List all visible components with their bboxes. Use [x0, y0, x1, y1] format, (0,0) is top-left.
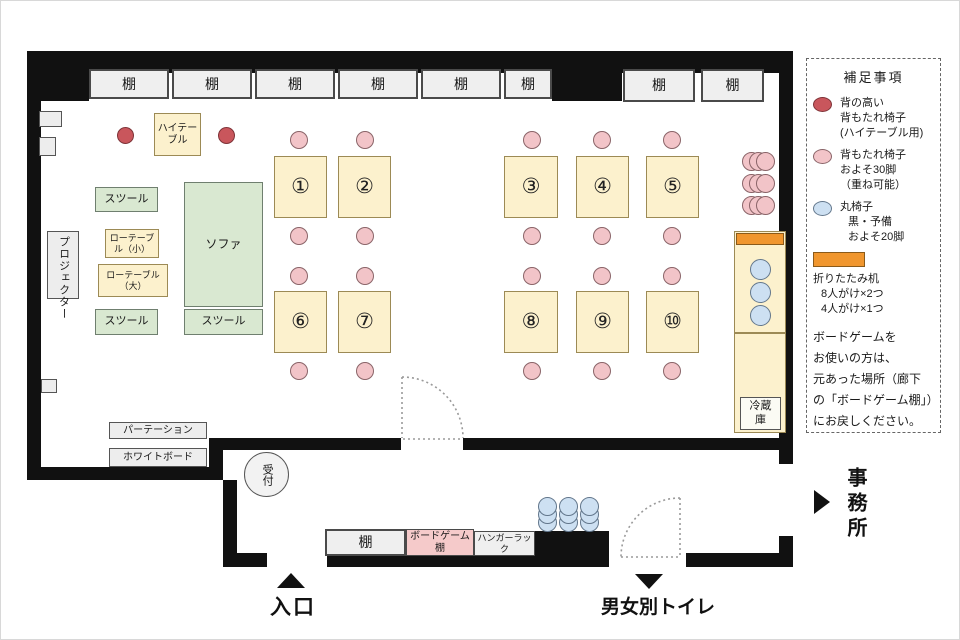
chair	[290, 131, 308, 149]
legend-note-line: お使いの方は、	[813, 348, 934, 369]
chair	[356, 267, 374, 285]
entrance-label: 入口	[263, 591, 323, 621]
whiteboard: ホワイトボード	[109, 448, 207, 467]
chair	[593, 227, 611, 245]
wall-corridor-bottom-right	[686, 553, 793, 567]
stacked-chair	[756, 152, 775, 171]
round-stool	[750, 259, 771, 280]
legend-line: (ハイテーブル用)	[840, 126, 923, 141]
table-1: ①	[274, 156, 327, 218]
shelf-top-6: 棚	[504, 69, 552, 99]
stool-top: スツール	[95, 187, 158, 212]
legend-line: 背もたれ椅子	[840, 111, 923, 126]
hanger-rack: ハンガーラック	[474, 531, 535, 556]
stacked-stool	[559, 497, 578, 516]
wall-bottom-main-right	[463, 438, 793, 450]
wall-bottom-main-left	[209, 438, 401, 450]
stacked-chair	[756, 196, 775, 215]
table-6: ⑥	[274, 291, 327, 353]
table-9: ⑨	[576, 291, 629, 353]
chair	[663, 227, 681, 245]
chair	[663, 362, 681, 380]
table-7: ⑦	[338, 291, 391, 353]
legend-line: およそ30脚	[840, 163, 906, 178]
tall-chair-1	[117, 127, 134, 144]
reception-desk: 受付	[244, 452, 289, 497]
sofa: ソファ	[184, 182, 263, 307]
legend-note-line: ボードゲームを	[813, 327, 934, 348]
legend-panel: 補足事項 背の高い 背もたれ椅子 (ハイテーブル用) 背もたれ椅子 およそ30脚…	[806, 58, 941, 433]
chair	[356, 131, 374, 149]
office-label: 事務所	[841, 467, 870, 557]
legend-title: 補足事項	[813, 67, 934, 86]
legend-line: およそ20脚	[840, 230, 904, 245]
table-2: ②	[338, 156, 391, 218]
round-stool	[750, 305, 771, 326]
legend-item-tall-back-chair: 背の高い 背もたれ椅子 (ハイテーブル用)	[813, 96, 934, 141]
stool-bottom-right: スツール	[184, 309, 263, 335]
folding-desk-icon	[813, 252, 865, 267]
legend-line: （重ね可能）	[840, 178, 906, 193]
legend-note: ボードゲームを お使いの方は、 元あった場所（廊下 の「ボードゲーム棚」） にお…	[813, 327, 934, 432]
chair	[523, 362, 541, 380]
chair	[523, 131, 541, 149]
wall-bottom-left	[27, 467, 223, 480]
table-5: ⑤	[646, 156, 699, 218]
toilet-door-arc	[621, 498, 680, 557]
entrance-arrow-icon	[277, 573, 305, 588]
legend-note-line: 元あった場所（廊下	[813, 369, 934, 390]
chair	[356, 362, 374, 380]
tall-chair-2	[218, 127, 235, 144]
fridge: 冷蔵庫	[740, 397, 781, 430]
shelf-top-4: 棚	[338, 69, 418, 99]
chair	[593, 267, 611, 285]
low-table-small: ローテーブル（小）	[105, 229, 159, 258]
table-4: ④	[576, 156, 629, 218]
legend-note-line: にお戻しください。	[813, 411, 934, 432]
partition: パーテーション	[109, 422, 207, 439]
shelf-bottom: 棚	[325, 529, 406, 556]
toilet-arrow-icon	[635, 574, 663, 589]
shelf-top-7: 棚	[623, 69, 695, 102]
round-stool	[750, 282, 771, 303]
legend-line: 丸椅子	[840, 200, 904, 215]
legend-line: 折りたたみ机	[813, 272, 934, 287]
wall-fixture-box-3	[41, 379, 57, 393]
chair	[663, 267, 681, 285]
wall-top-mid-block	[552, 51, 622, 101]
chair	[290, 267, 308, 285]
low-table-large: ローテーブル（大）	[98, 264, 168, 297]
chair	[356, 227, 374, 245]
projector-label: プロジェクター	[51, 207, 75, 349]
chair	[663, 131, 681, 149]
shelf-top-5: 棚	[421, 69, 501, 99]
table-8: ⑧	[504, 291, 558, 353]
legend-item-folding-desk: 折りたたみ机 8人がけ×2つ 4人がけ×1つ	[813, 252, 934, 317]
legend-line: 8人がけ×2つ	[813, 287, 934, 302]
table-10: ⑩	[646, 291, 699, 353]
office-arrow-icon	[814, 490, 830, 514]
wall-corridor-block	[534, 531, 609, 567]
stacked-stool	[580, 497, 599, 516]
high-table: ハイテーブル	[154, 113, 201, 156]
legend-item-round-stool: 丸椅子 黒・予備 およそ20脚	[813, 200, 934, 245]
chair	[593, 362, 611, 380]
legend-line: 4人がけ×1つ	[813, 302, 934, 317]
legend-line: 背もたれ椅子	[840, 148, 906, 163]
chair	[523, 267, 541, 285]
toilet-label: 男女別トイレ	[593, 592, 723, 619]
legend-line: 背の高い	[840, 96, 923, 111]
table-3: ③	[504, 156, 558, 218]
shelf-top-8: 棚	[701, 69, 764, 102]
legend-line: 黒・予備	[840, 215, 904, 230]
main-room-door-arc	[402, 377, 463, 438]
shelf-top-1: 棚	[89, 69, 169, 99]
shelf-top-3: 棚	[255, 69, 335, 99]
stacked-chair	[756, 174, 775, 193]
back-chair-icon	[813, 149, 832, 164]
folding-desk	[736, 233, 784, 245]
wall-fixture-box-1	[39, 111, 62, 127]
wall-corridor-stub	[223, 553, 267, 567]
legend-note-line: の「ボードゲーム棚」）	[813, 390, 934, 411]
chair	[593, 131, 611, 149]
tall-back-chair-icon	[813, 97, 832, 112]
round-stool-icon	[813, 201, 832, 216]
board-game-shelf: ボードゲーム棚	[406, 529, 474, 556]
floor-plan: 棚 棚 棚 棚 棚 棚 棚 棚 プロジェクター ハイテーブル スツール ローテー…	[0, 0, 960, 640]
chair	[290, 227, 308, 245]
chair	[290, 362, 308, 380]
legend-item-back-chair: 背もたれ椅子 およそ30脚 （重ね可能）	[813, 148, 934, 193]
stacked-stool	[538, 497, 557, 516]
shelf-top-2: 棚	[172, 69, 252, 99]
stool-bottom-left: スツール	[95, 309, 158, 335]
chair	[523, 227, 541, 245]
wall-fixture-box-2	[39, 137, 56, 156]
